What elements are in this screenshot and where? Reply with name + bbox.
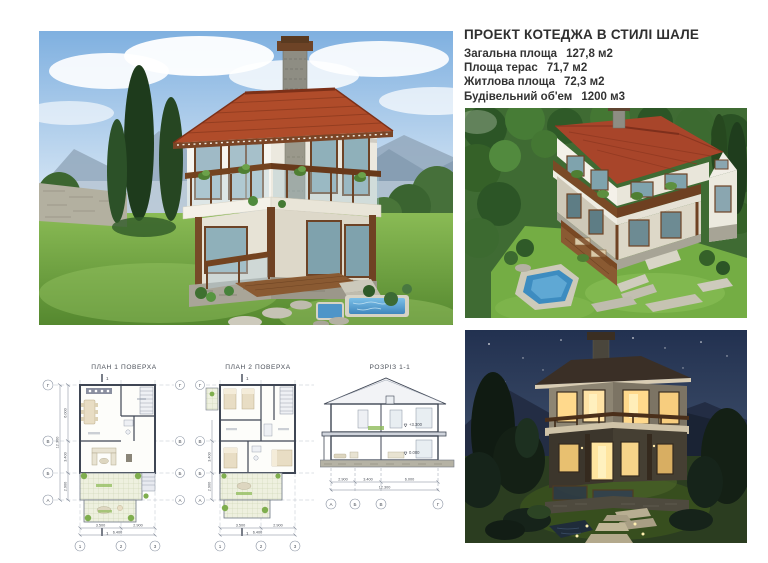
svg-text:6.400: 6.400 [253, 531, 263, 535]
plan1-building [80, 385, 155, 473]
svg-text:2.900: 2.900 [273, 524, 283, 528]
svg-text:3.400: 3.400 [64, 452, 68, 462]
render-day-aerial [465, 108, 747, 318]
svg-text:2.900: 2.900 [208, 482, 212, 492]
stairs [280, 387, 293, 414]
floor-plan-2-drawing: ПЛАН 2 ПОВЕРХА 1 1 [192, 358, 324, 558]
svg-text:6.000: 6.000 [64, 408, 68, 418]
svg-text:2: 2 [120, 544, 123, 549]
page-title: ПРОЕКТ КОТЕДЖА В СТИЛІ ШАЛЕ [464, 27, 764, 42]
svg-text:В: В [46, 439, 49, 444]
section-dims: 2.900 3.400 6.000 12.300 [330, 468, 440, 492]
spec-label: Будівельний об'ем [464, 91, 572, 103]
spec-total-area: Загальна площа127,8 м2 [464, 47, 764, 61]
fireplace [126, 454, 132, 462]
svg-text:12.300: 12.300 [379, 486, 391, 490]
svg-text:1: 1 [246, 376, 249, 381]
spec-value: 127,8 м2 [566, 48, 613, 60]
svg-text:3.500: 3.500 [96, 524, 106, 528]
svg-text:3: 3 [294, 544, 297, 549]
plan2-bottom-dims: 3.500 2.900 6.400 [219, 524, 297, 537]
svg-text:В: В [379, 502, 382, 507]
spec-value: 71,7 м2 [547, 62, 587, 74]
spec-terrace-area: Площа терас71,7 м2 [464, 61, 764, 75]
plan2-terrace [220, 473, 282, 518]
spec-living-area: Житлова площа72,3 м2 [464, 75, 764, 89]
night-ground-floor [549, 428, 687, 488]
svg-text:3.500: 3.500 [236, 524, 246, 528]
svg-text:Б: Б [353, 502, 356, 507]
room-label-strip [236, 492, 252, 495]
render-day-front [39, 31, 453, 325]
room-label-strip [368, 426, 384, 430]
svg-text:2.900: 2.900 [338, 478, 348, 482]
svg-text:+3.300: +3.300 [409, 422, 423, 427]
plan1-label: ПЛАН 1 ПОВЕРХА [91, 364, 157, 371]
svg-text:2.900: 2.900 [64, 482, 68, 492]
svg-text:1: 1 [79, 544, 82, 549]
spec-label: Житлова площа [464, 76, 555, 88]
spec-label: Площа терас [464, 62, 538, 74]
svg-text:0.000: 0.000 [409, 450, 420, 455]
room-label-strip [96, 484, 112, 487]
svg-text:Б: Б [46, 471, 49, 476]
day-aerial-render-image [465, 108, 747, 318]
svg-text:Б: Б [178, 471, 181, 476]
svg-text:3.400: 3.400 [363, 478, 373, 482]
night-render-image [465, 330, 747, 543]
plan2-balcony-top [206, 388, 218, 410]
dining-table [81, 400, 98, 424]
svg-text:12.300: 12.300 [56, 437, 60, 449]
plan2-building [220, 385, 295, 473]
svg-text:1: 1 [106, 376, 109, 381]
section-1-1: РОЗРІЗ 1-1 +3.300 0.000 [320, 358, 460, 554]
section-axis-bubbles: А Б В Г [326, 499, 443, 509]
spec-value: 72,3 м2 [564, 76, 604, 88]
plan2-left-dims: 3.400 2.900 [208, 420, 214, 502]
spec-value: 1200 м3 [581, 91, 625, 103]
ground-slab [320, 460, 454, 467]
svg-text:Б: Б [198, 471, 201, 476]
svg-text:В: В [178, 439, 181, 444]
render-night [465, 330, 747, 543]
svg-text:6.400: 6.400 [113, 531, 123, 535]
plan1-terrace [80, 473, 155, 522]
section-house: +3.300 0.000 [320, 378, 454, 467]
svg-text:1: 1 [219, 544, 222, 549]
floor-plan-2: ПЛАН 2 ПОВЕРХА 1 1 [192, 358, 324, 558]
stairs [140, 387, 153, 414]
plan1-left-dims: 6.000 3.400 2.900 12.300 [56, 384, 70, 502]
plan2-label: ПЛАН 2 ПОВЕРХА [225, 364, 291, 371]
plan1-bottom-dims: 3.500 2.900 6.400 [79, 524, 157, 537]
section-drawing: РОЗРІЗ 1-1 +3.300 0.000 [320, 358, 460, 554]
svg-text:3.400: 3.400 [208, 452, 212, 462]
spec-volume: Будівельний об'ем1200 м3 [464, 90, 764, 104]
section-label: РОЗРІЗ 1-1 [370, 364, 411, 371]
spec-label: Загальна площа [464, 48, 557, 60]
svg-text:В: В [198, 439, 201, 444]
svg-text:2.900: 2.900 [133, 524, 143, 528]
floor-plan-1: ПЛАН 1 ПОВЕРХА 1 1 [38, 358, 190, 558]
svg-text:2: 2 [260, 544, 263, 549]
svg-text:6.000: 6.000 [405, 478, 415, 482]
floor-plan-1-drawing: ПЛАН 1 ПОВЕРХА 1 1 [38, 358, 190, 558]
svg-text:3: 3 [154, 544, 157, 549]
project-title-block: ПРОЕКТ КОТЕДЖА В СТИЛІ ШАЛЕ Загальна пло… [464, 27, 764, 104]
day-front-render-image [39, 31, 453, 325]
